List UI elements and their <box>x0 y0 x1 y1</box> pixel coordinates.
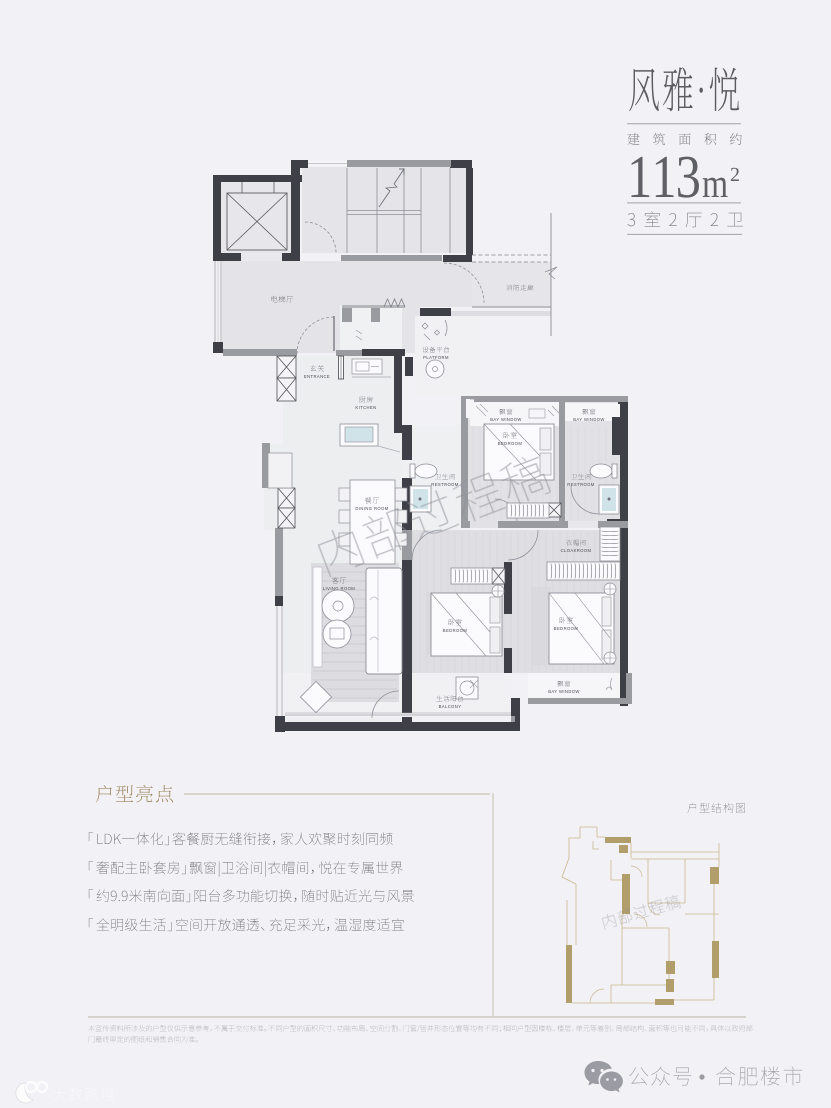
svg-text:CLOAKROOM: CLOAKROOM <box>561 548 592 553</box>
svg-text:DINING ROOM: DINING ROOM <box>355 506 388 511</box>
svg-text:BAY WINDOW: BAY WINDOW <box>490 417 522 422</box>
svg-text:BEDROOM: BEDROOM <box>554 626 579 631</box>
svg-text:BEDROOM: BEDROOM <box>498 441 523 446</box>
svg-text:ENTRANCE: ENTRANCE <box>304 374 330 379</box>
svg-text:KITCHEN: KITCHEN <box>355 405 376 410</box>
svg-text:BALCONY: BALCONY <box>439 704 462 709</box>
svg-text:BAY WINDOW: BAY WINDOW <box>573 417 605 422</box>
svg-text:BAY WINDOW: BAY WINDOW <box>548 689 580 694</box>
svg-text:LIVING ROOM: LIVING ROOM <box>323 586 355 591</box>
svg-text:RESTROOM: RESTROOM <box>567 482 595 487</box>
svg-text:RESTROOM: RESTROOM <box>431 482 459 487</box>
svg-text:BEDROOM: BEDROOM <box>443 628 468 633</box>
svg-text:PLATFORM: PLATFORM <box>423 355 449 360</box>
